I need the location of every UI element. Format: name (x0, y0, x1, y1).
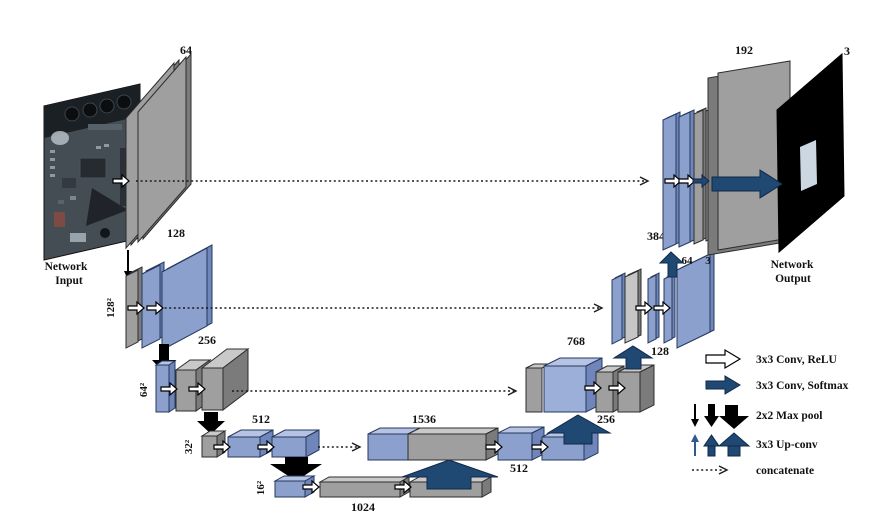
dec-row1-concat-label: 192 (735, 43, 753, 57)
box-face (677, 254, 710, 348)
encoder-row1-conv-sheets (126, 54, 191, 248)
pcb-capacitor (100, 228, 110, 238)
pcb-capacitor (100, 99, 114, 113)
small-down-arrowhead (704, 416, 719, 427)
pcb-pad (104, 144, 109, 147)
legend-label-conv-softmax: 3x3 Conv, Softmax (756, 380, 849, 392)
bottleneck-size-label: 16² (255, 480, 267, 495)
network-input-label-line1: Network (45, 261, 88, 273)
pcb-capacitor (65, 107, 79, 121)
pcb-pad (50, 150, 55, 153)
decoder-row2-conv-sheets (612, 252, 714, 348)
dec-row4-out-label: 512 (510, 461, 528, 475)
legend: 3x3 Conv, ReLU 3x3 Conv, Softmax 2x2 Max… (691, 350, 849, 477)
output-channels-label: 3 (844, 44, 850, 58)
output-segmentation-region (800, 140, 817, 191)
diagram-canvas: Network Input 64 128 128² (0, 0, 888, 529)
box-face (596, 372, 613, 412)
small-up-arrowhead (704, 435, 719, 446)
dec-row4-concat-label: 1536 (412, 412, 436, 426)
box-face (408, 428, 498, 434)
box-face (138, 57, 186, 242)
dec-row2-concat-label: 384 (647, 229, 665, 243)
enc-row2-size-label: 128² (105, 297, 117, 318)
network-output-label-line1: Network (771, 259, 814, 271)
encoder-row4-conv-boxes (202, 430, 319, 457)
big-down-arrowhead (719, 416, 749, 429)
box-face (618, 372, 640, 412)
enc-row4-size-label: 32² (183, 439, 195, 454)
bottleneck-channels-label: 1024 (351, 500, 375, 514)
legend-label-concatenate: concatenate (756, 465, 814, 477)
box-face (320, 477, 409, 482)
max-pool-arrow-3 (204, 412, 218, 421)
thin-down-arrowhead (691, 419, 699, 427)
big-down-arrow (725, 405, 738, 416)
legend-label-conv-relu: 3x3 Conv, ReLU (756, 354, 838, 366)
network-input-label-line2: Input (55, 275, 83, 287)
enc-row3-channels-label: 256 (198, 333, 216, 347)
pcb-chip (80, 158, 106, 178)
blue-up-arrows-icon (691, 433, 749, 456)
box-face (275, 481, 305, 497)
big-up-arrow (728, 446, 740, 456)
pcb-strip (88, 124, 122, 130)
box-face (526, 368, 542, 412)
box-face (272, 437, 306, 457)
pcb-pad (70, 196, 76, 200)
pcb-pad (50, 174, 55, 177)
big-up-arrowhead (719, 433, 749, 446)
pcb-red-part (54, 212, 65, 227)
black-down-arrows-icon (691, 404, 749, 429)
small-down-arrow (708, 404, 715, 416)
pcb-light-rect (70, 233, 86, 242)
pcb-pad (50, 158, 55, 161)
box-face (612, 275, 622, 344)
box-face (544, 366, 586, 412)
dec-row2-out-label: 3 (705, 255, 711, 267)
pcb-capacitor (83, 103, 97, 117)
box-face (368, 434, 408, 460)
thin-up-arrowhead (691, 434, 699, 442)
max-pool-arrow-2 (159, 344, 169, 360)
encoder-row3-conv-boxes (156, 349, 248, 412)
pcb-chip (62, 178, 76, 188)
pcb-pad (50, 166, 55, 169)
dec-row3-up-label: 256 (597, 412, 615, 426)
max-pool-arrow-4 (285, 457, 308, 464)
unet-architecture-diagram: Network Input 64 128 128² (0, 0, 888, 529)
box-face (640, 365, 654, 412)
navy-right-arrow-icon (706, 376, 740, 394)
enc-row2-channels-label: 128 (167, 226, 185, 240)
small-up-arrow (708, 446, 715, 456)
dec-row1-up-label: 64 (682, 255, 694, 267)
legend-label-max-pool: 2x2 Max pool (756, 410, 822, 422)
network-output-label-line2: Output (775, 273, 811, 285)
decoder-row1-conv-sheets (663, 61, 790, 255)
box-face (228, 437, 260, 457)
enc-row3-size-label: 64² (138, 382, 150, 397)
pcb-pad (96, 146, 101, 149)
dec-row2-up-label: 128 (651, 344, 669, 358)
pcb-capacitor (117, 95, 131, 109)
pcb-light-part (51, 131, 69, 145)
pcb-pad (58, 200, 64, 204)
dec-row3-concat-label: 768 (567, 334, 585, 348)
legend-label-up-conv: 3x3 Up-conv (756, 439, 818, 451)
enc-row4-channels-label: 512 (252, 412, 270, 426)
box-face (498, 433, 532, 460)
box-face (320, 482, 400, 497)
dotted-arrow-icon (692, 466, 727, 474)
enc-row1-channels-label: 64 (180, 43, 192, 57)
box-face (408, 434, 486, 460)
white-right-arrow-icon (706, 350, 740, 368)
